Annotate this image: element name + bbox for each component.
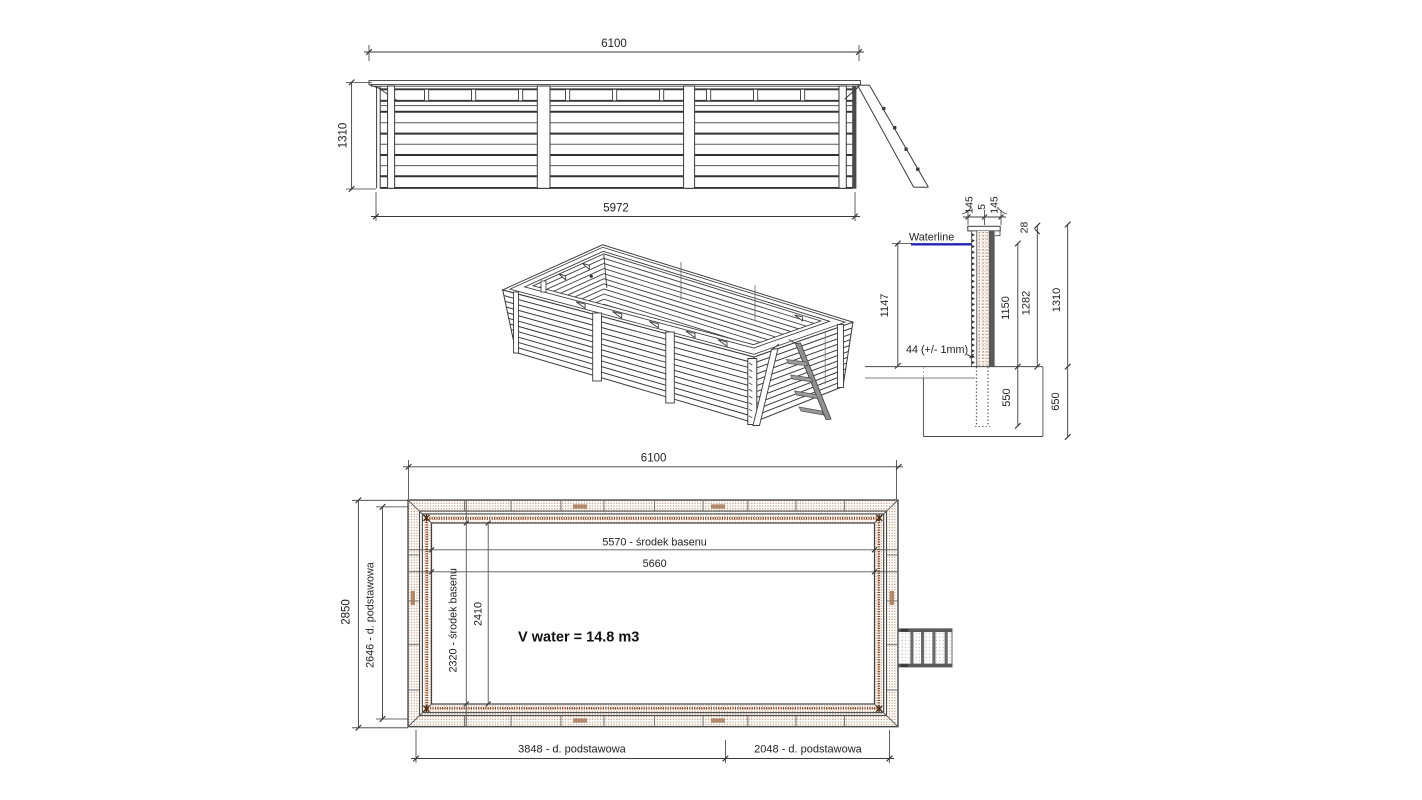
svg-text:1310: 1310 xyxy=(1051,288,1063,312)
svg-text:5972: 5972 xyxy=(603,203,629,215)
svg-text:145: 145 xyxy=(964,196,976,214)
svg-text:145: 145 xyxy=(989,196,1001,214)
svg-text:2048 - d. podstawowa: 2048 - d. podstawowa xyxy=(754,744,863,756)
svg-text:1147: 1147 xyxy=(879,294,891,318)
svg-text:28: 28 xyxy=(1019,222,1031,234)
svg-text:2850: 2850 xyxy=(341,599,353,625)
svg-text:V water = 14.8 m3: V water = 14.8 m3 xyxy=(518,630,639,646)
svg-text:Waterline: Waterline xyxy=(909,232,954,244)
svg-text:2410: 2410 xyxy=(473,602,485,626)
svg-text:1310: 1310 xyxy=(338,123,350,149)
svg-text:5660: 5660 xyxy=(643,558,667,570)
svg-text:650: 650 xyxy=(1050,392,1062,410)
svg-text:3848 - d. podstawowa: 3848 - d. podstawowa xyxy=(518,744,627,756)
svg-text:1282: 1282 xyxy=(1021,291,1033,315)
svg-text:5: 5 xyxy=(976,204,988,210)
svg-text:6100: 6100 xyxy=(641,453,667,465)
svg-text:44 (+/- 1mm): 44 (+/- 1mm) xyxy=(906,344,968,356)
svg-text:2646 - d. podstawowa: 2646 - d. podstawowa xyxy=(365,562,377,668)
svg-text:6100: 6100 xyxy=(601,38,627,50)
svg-text:1150: 1150 xyxy=(1000,296,1012,320)
svg-text:2320 - środek basenu: 2320 - środek basenu xyxy=(448,568,460,672)
svg-text:5570 - środek basenu: 5570 - środek basenu xyxy=(602,537,706,549)
svg-text:550: 550 xyxy=(1001,388,1013,406)
